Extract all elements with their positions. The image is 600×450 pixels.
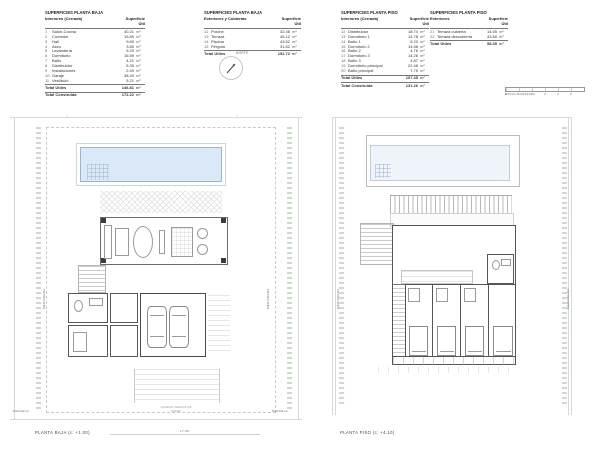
table-cell: 22 (430, 35, 437, 40)
area-table-planta-piso-interiores: SUPERFICIES PLANTA PISO Interiores (Cerr… (341, 11, 429, 89)
terrace-strip (393, 356, 515, 365)
table-cell: 7.75 (403, 69, 418, 74)
table-cell: m² (290, 52, 301, 57)
shower-icon (464, 288, 476, 302)
boundary-line (571, 117, 572, 415)
table-body: 12Porche32.46m²13Terraza45.12m²14Piscina… (204, 30, 301, 50)
table-row: Total Construida172.22m² (45, 92, 145, 99)
access-note-line2: ACERA (144, 410, 208, 414)
table-title: SUPERFICIES PLANTA PISO (341, 11, 429, 16)
bed-icon (409, 326, 428, 356)
armchair (197, 228, 208, 239)
table-cell: m² (418, 69, 429, 74)
kitchen-island (115, 228, 129, 256)
interior-wall (393, 284, 515, 285)
table-title: SUPERFICIES PLANTA PISO (430, 11, 508, 16)
col-header-group: Exteriores (430, 17, 482, 27)
table-cell: 11 (45, 79, 52, 84)
table-row: Total Útiles146.81m² (45, 84, 145, 91)
col-header-group: Interiores (Cerrada) (45, 17, 119, 27)
table-cell: Baño principal (348, 69, 403, 74)
table-row: Total Construida131.26m² (341, 82, 429, 89)
table-cell: 58.35 (482, 42, 497, 47)
dining-table (133, 226, 153, 258)
access-note: ACCESO VEHÍCULOS ACERA (144, 406, 208, 413)
table-row: Total Útiles152.72m² (204, 50, 301, 57)
survey-mark: + (236, 113, 238, 118)
wardrobe-strip (393, 284, 405, 356)
car-icon (147, 306, 167, 348)
table-totals: Total Útiles107.45m²Total Construida131.… (341, 75, 429, 89)
table-body: 21Terraza cubierta14.55m²22Terraza descu… (430, 30, 508, 40)
pool-steps (87, 164, 109, 180)
room-storage (110, 293, 138, 323)
table-cell: m² (418, 76, 429, 81)
dimension-line (110, 434, 260, 435)
plan-sheet: SUPERFICIES PLANTA BAJA Interiores (Cerr… (0, 0, 600, 450)
table-totals: Total Útiles152.72m² (204, 50, 301, 57)
area-table-planta-piso-exteriores: SUPERFICIES PLANTA PISO Exteriores Super… (430, 11, 508, 47)
table-cell: 146.81 (119, 86, 134, 91)
kitchen-counter (104, 225, 112, 259)
table-cell: Total Útiles (45, 86, 119, 91)
table-header: Exteriores y Cubiertas Superficie Útil (204, 17, 301, 28)
armchair (197, 244, 208, 255)
scale-label: ESCALA GRÁFICA (505, 92, 535, 96)
table-cell: Total Construida (45, 93, 119, 98)
area-table-planta-baja-exteriores: SUPERFICIES PLANTA BAJA Exteriores y Cub… (204, 11, 301, 57)
medianera-label-right: MEDIANERA (566, 288, 570, 309)
shower-icon (408, 288, 420, 302)
room-bath (68, 293, 108, 323)
bed-icon (437, 326, 456, 356)
hedge-band (36, 127, 41, 409)
boundary-line (332, 117, 571, 118)
table-cell: 172.22 (119, 93, 134, 98)
medianera-label-right: MEDIANERA (266, 288, 270, 309)
table-header: Interiores (Cerrada) Superficie Útil (45, 17, 145, 28)
terrace-hatch (100, 191, 222, 213)
swimming-pool (80, 147, 222, 182)
bed-icon (493, 326, 513, 356)
caption-planta-baja: PLANTA BAJA (c: +1.00) (35, 430, 90, 435)
table-cell: 20 (341, 69, 348, 74)
table-cell: Total Útiles (430, 42, 482, 47)
parcel-label-left: PARCELA (13, 409, 29, 413)
upper-floor-block (392, 225, 516, 365)
caption-planta-piso: PLANTA PISO (c: +4.10) (340, 430, 395, 435)
sink-icon (501, 259, 511, 266)
table-cell: 43.80 (482, 35, 497, 40)
hedge-band (562, 127, 567, 407)
table-cell: 107.45 (403, 76, 418, 81)
toilet-icon (74, 300, 83, 312)
driveway (134, 369, 220, 403)
medianera-label-left: MEDIANERA (42, 288, 46, 309)
pool-below (370, 145, 510, 181)
table-row: Total Útiles107.45m² (341, 75, 429, 82)
pool-steps (375, 164, 391, 178)
sofa-set (171, 227, 193, 257)
boundary-line (568, 117, 569, 415)
interior-wall (405, 284, 406, 356)
area-table-planta-baja-interiores: SUPERFICIES PLANTA BAJA Interiores (Cerr… (45, 11, 145, 98)
north-label: NORTE (236, 51, 249, 55)
room-install (110, 325, 138, 357)
table-title: SUPERFICIES PLANTA BAJA (204, 11, 301, 16)
ground-shadow-ticks (378, 367, 514, 373)
toilet-icon (492, 260, 500, 270)
table-cell: 5.21 (119, 79, 134, 84)
table-cell: 152.72 (275, 52, 290, 57)
table-cell: m² (418, 84, 429, 89)
table-cell: Total Útiles (341, 76, 403, 81)
table-totals: Total Útiles58.35m² (430, 40, 508, 47)
col-header-value: Superficie Útil (403, 17, 429, 27)
washer-icon (73, 332, 87, 352)
col-header-value: Superficie Útil (482, 17, 508, 27)
table-cell: 131.26 (403, 84, 418, 89)
stairs-icon (360, 223, 394, 265)
plan-planta-baja: + + (10, 113, 302, 425)
plan-planta-piso: MEDIANERA MEDIANERA (318, 113, 598, 425)
hedge-band (339, 127, 344, 407)
survey-mark: + (66, 113, 68, 118)
shower-icon (436, 288, 448, 302)
table-cell: m² (497, 35, 508, 40)
master-bath (487, 254, 514, 284)
table-body: 12Distribuidor18.74m²13Dormitorio 114.78… (341, 30, 429, 74)
col-header-value: Superficie Útil (275, 17, 301, 27)
stairs-icon (78, 265, 106, 293)
column (221, 258, 226, 263)
boundary-line (298, 117, 299, 419)
table-cell: m² (290, 45, 301, 50)
boundary-line (332, 117, 333, 415)
table-cell: m² (497, 42, 508, 47)
tv-unit (159, 230, 165, 254)
north-arrow-icon (219, 56, 243, 80)
table-body: 1Salón-Cocina40.21m²2Comedor15.80m²3Hall… (45, 30, 145, 84)
hedge-band (287, 127, 292, 409)
table-cell: m² (134, 79, 145, 84)
scale-tick: 3 (544, 92, 557, 96)
north-arrow-glyph (220, 57, 242, 79)
sink-icon (89, 298, 103, 306)
living-volume (100, 217, 228, 265)
table-row: 15Pérgola31.62m² (204, 45, 301, 50)
dimension-label: 17.00 (180, 429, 189, 433)
column (101, 218, 106, 223)
medianera-label-left: MEDIANERA (336, 288, 340, 309)
table-cell: 15 (204, 45, 211, 50)
garage (140, 293, 206, 357)
parcel-label-right: PARCELA (272, 409, 288, 413)
boundary-line (14, 117, 15, 419)
table-cell: Terraza descubierta (437, 35, 482, 40)
col-header-value: Superficie Útil (119, 17, 145, 27)
room-laundry (68, 325, 108, 357)
table-title: SUPERFICIES PLANTA BAJA (45, 11, 145, 16)
table-cell: Total Construida (341, 84, 403, 89)
interior-wall (488, 284, 489, 356)
void-slats (401, 270, 473, 284)
column (221, 218, 226, 223)
table-totals: Total Útiles146.81m²Total Construida172.… (45, 84, 145, 98)
boundary-line (10, 117, 302, 118)
table-header: Exteriores Superficie Útil (430, 17, 508, 28)
table-row: 11Vestíbulo5.21m² (45, 79, 145, 84)
bed-icon (465, 326, 484, 356)
table-row: 22Terraza descubierta43.80m² (430, 35, 508, 40)
interior-wall (432, 284, 433, 356)
table-cell: m² (134, 93, 145, 98)
interior-wall (460, 284, 461, 356)
table-row: 20Baño principal7.75m² (341, 69, 429, 74)
scale-tick: 5 (570, 92, 583, 96)
scale-tick: 4 (557, 92, 570, 96)
table-cell: Pérgola (211, 45, 275, 50)
table-row: Total Útiles58.35m² (430, 40, 508, 47)
table-cell: Vestíbulo (52, 79, 119, 84)
pergola-slats (390, 195, 512, 215)
car-icon (169, 306, 189, 348)
table-cell: m² (134, 86, 145, 91)
boundary-line (335, 117, 336, 415)
boundary-line (10, 419, 302, 420)
table-cell: 31.62 (275, 45, 290, 50)
col-header-group: Interiores (Cerrada) (341, 17, 403, 27)
table-header: Interiores (Cerrada) Superficie Útil (341, 17, 429, 28)
col-header-group: Exteriores y Cubiertas (204, 17, 275, 27)
patio-pergola-stripes (208, 295, 230, 353)
